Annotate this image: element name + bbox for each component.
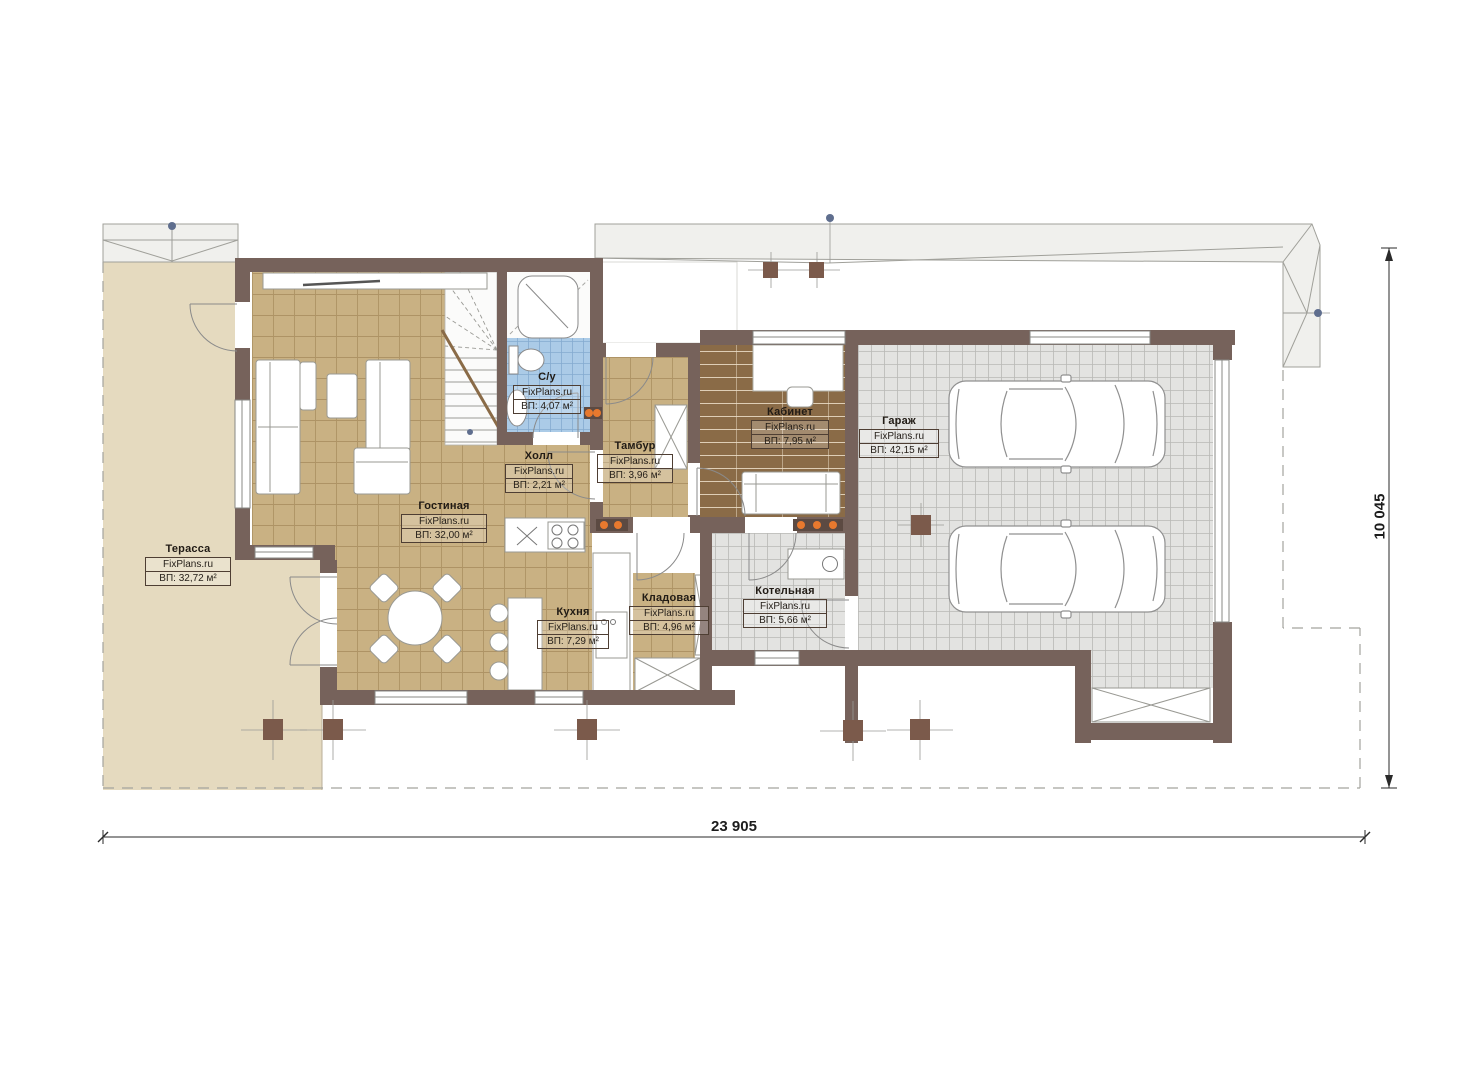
- room-name: Котельная: [755, 585, 814, 597]
- room-label-terrace: Терасса FixPlans.ru ВП: 32,72 м²: [146, 543, 230, 586]
- window-kitchen-south-1: [375, 691, 467, 704]
- porch-column: [577, 719, 597, 740]
- room-label-garage: Гараж FixPlans.ru ВП: 42,15 м²: [860, 415, 938, 458]
- floor-plan-canvas: Терасса FixPlans.ru ВП: 32,72 м² Гостина…: [0, 0, 1474, 1080]
- porch-column: [263, 719, 283, 740]
- room-area: ВП: 2,21 м²: [506, 478, 572, 492]
- room-name: Холл: [525, 450, 553, 462]
- roof-column: [763, 262, 778, 278]
- room-label-vestibule: Тамбур FixPlans.ru ВП: 3,96 м²: [598, 440, 672, 483]
- brand-text: FixPlans.ru: [146, 558, 230, 571]
- bar-stool: [490, 604, 508, 622]
- room-label-storage: Кладовая FixPlans.ru ВП: 4,96 м²: [630, 592, 708, 635]
- bar-stool: [490, 633, 508, 651]
- dimension-width-label: 23 905: [694, 818, 774, 835]
- room-info-box: FixPlans.ru ВП: 2,21 м²: [505, 464, 573, 493]
- porch-column: [323, 719, 343, 740]
- window-living-left: [235, 400, 250, 508]
- room-area: ВП: 3,96 м²: [598, 468, 672, 482]
- brand-text: FixPlans.ru: [538, 621, 608, 634]
- room-area: ВП: 4,07 м²: [514, 399, 580, 413]
- window-living-step: [255, 547, 313, 558]
- porch-column: [843, 720, 863, 741]
- room-label-living: Гостиная FixPlans.ru ВП: 32,00 м²: [402, 500, 486, 543]
- bar-stool: [490, 662, 508, 680]
- brand-text: FixPlans.ru: [506, 465, 572, 478]
- study-sofa: [742, 472, 840, 514]
- brand-text: FixPlans.ru: [752, 421, 828, 434]
- floor-plan-svg: [0, 0, 1474, 1080]
- room-name: Кабинет: [767, 406, 813, 418]
- room-label-kitchen: Кухня FixPlans.ru ВП: 7,29 м²: [538, 606, 608, 649]
- room-info-box: FixPlans.ru ВП: 4,07 м²: [513, 385, 581, 414]
- garage-pilaster: [911, 515, 931, 535]
- car-top: [949, 375, 1165, 473]
- room-area: ВП: 32,00 м²: [402, 528, 486, 542]
- radiator: [793, 519, 843, 531]
- window-kitchen-south-2: [535, 691, 583, 704]
- window-garage-north: [1030, 331, 1150, 344]
- dimension-height-label: 10 045: [1372, 482, 1389, 552]
- brand-text: FixPlans.ru: [514, 386, 580, 399]
- brand-text: FixPlans.ru: [630, 607, 708, 620]
- brand-text: FixPlans.ru: [402, 515, 486, 528]
- room-area: ВП: 7,29 м²: [538, 634, 608, 648]
- radiator: [584, 407, 602, 419]
- stairs-floor: [445, 272, 497, 445]
- room-name: Гостиная: [418, 500, 469, 512]
- room-info-box: FixPlans.ru ВП: 5,66 м²: [743, 599, 827, 628]
- room-name: Терасса: [165, 543, 210, 555]
- room-name: Кухня: [556, 606, 589, 618]
- room-area: ВП: 42,15 м²: [860, 443, 938, 457]
- room-label-study: Кабинет FixPlans.ru ВП: 7,95 м²: [752, 406, 828, 449]
- storage-shelf-bottom: [635, 658, 700, 692]
- room-label-boiler: Котельная FixPlans.ru ВП: 5,66 м²: [744, 585, 826, 628]
- radiator: [596, 519, 628, 531]
- room-name: Кладовая: [642, 592, 696, 604]
- garage-door-panel: [1092, 688, 1210, 722]
- coffee-table: [327, 374, 357, 418]
- room-area: ВП: 4,96 м²: [630, 620, 708, 634]
- room-info-box: FixPlans.ru ВП: 7,95 м²: [751, 420, 829, 449]
- room-info-box: FixPlans.ru ВП: 32,00 м²: [401, 514, 487, 543]
- room-label-bathroom: С/у FixPlans.ru ВП: 4,07 м²: [514, 371, 580, 414]
- room-name: Гараж: [882, 415, 916, 427]
- brand-text: FixPlans.ru: [744, 600, 826, 613]
- porch-column: [910, 719, 930, 740]
- roof-column: [809, 262, 824, 278]
- brand-text: FixPlans.ru: [860, 430, 938, 443]
- car-bottom: [949, 520, 1165, 618]
- window-garage-east: [1215, 360, 1229, 622]
- desk-chair: [787, 387, 813, 407]
- room-info-box: FixPlans.ru ВП: 3,96 м²: [597, 454, 673, 483]
- room-info-box: FixPlans.ru ВП: 42,15 м²: [859, 429, 939, 458]
- study-desk-niche: [753, 345, 843, 391]
- room-area: ВП: 7,95 м²: [752, 434, 828, 448]
- room-label-hall: Холл FixPlans.ru ВП: 2,21 м²: [506, 450, 572, 493]
- brand-text: FixPlans.ru: [598, 455, 672, 468]
- room-name: Тамбур: [614, 440, 655, 452]
- room-info-box: FixPlans.ru ВП: 7,29 м²: [537, 620, 609, 649]
- window-study-north: [753, 331, 845, 344]
- window-boiler-south: [755, 651, 799, 665]
- room-info-box: FixPlans.ru ВП: 32,72 м²: [145, 557, 231, 586]
- boiler-unit: [788, 549, 844, 579]
- room-area: ВП: 5,66 м²: [744, 613, 826, 627]
- room-name: С/у: [538, 371, 556, 383]
- door-corridor: [637, 533, 684, 580]
- room-area: ВП: 32,72 м²: [146, 571, 230, 585]
- room-info-box: FixPlans.ru ВП: 4,96 м²: [629, 606, 709, 635]
